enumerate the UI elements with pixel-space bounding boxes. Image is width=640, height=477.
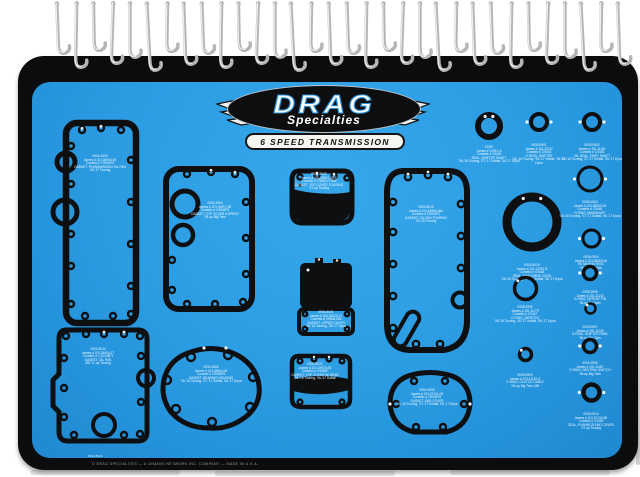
gasket-oil-pan-touring-gasket: 0934-5015 James # JGI-34904-06A Cometic … xyxy=(374,162,480,369)
logo-oval: DRAG Specialties xyxy=(227,85,421,133)
main-drive-gear-seal-ring-icon xyxy=(494,184,570,260)
top-cover-gasket-shape-icon xyxy=(157,160,261,318)
detent-pin-o-ring-ring-icon xyxy=(576,259,604,287)
gasket-oil-pan-m8-gasket: 0934-5014 James # JGI-34904-17 Cometic #… xyxy=(44,322,156,455)
part-label: 0935-0908 James # JGI-11187 O-RING, NEUT… xyxy=(555,362,622,376)
peg-hooks-row xyxy=(0,0,640,90)
part-label: 0935-0910 James # JGI-37133-98 Cometic #… xyxy=(555,413,622,431)
gasket-bearing-housing-gasket: 0934-4555 James # JGI-35654-06 Cometic #… xyxy=(152,342,270,441)
peg-hook-icon xyxy=(610,0,637,82)
gasket-end-cover-gasket: 0934-4556 James # JGI-37101-06 Cometic #… xyxy=(383,366,477,445)
display-board: DRAG Specialties 6 SPEED TRANSMISSION 09… xyxy=(18,56,638,470)
board-surface: DRAG Specialties 6 SPEED TRANSMISSION 09… xyxy=(32,82,622,458)
reflection xyxy=(450,470,610,475)
part-main-drive-gear-seal xyxy=(494,184,570,265)
board-subtitle: 6 SPEED TRANSMISSION xyxy=(245,133,405,150)
gasket-part-label: 0934-4555 James # JGI-35654-06 Cometic #… xyxy=(169,366,253,384)
gasket-transmission-oil-pan-gasket: 0934-4553 James # JGI-34904-06 Cometic #… xyxy=(55,114,145,337)
retaining-ring-ring-icon xyxy=(576,223,607,254)
brand-name: DRAG xyxy=(273,93,375,115)
mainshaft-o-ring-ring-icon xyxy=(571,160,609,198)
drag-specialties-logo: DRAG Specialties 6 SPEED TRANSMISSION xyxy=(215,85,431,151)
copyright-note: © DRAG SPECIALTIES — A LEMANS NETWORK IN… xyxy=(92,462,258,466)
display-board-photo: DRAG Specialties 6 SPEED TRANSMISSION 09… xyxy=(0,0,640,477)
part-label: 0935-0903 James # JGI-35652-06 Cometic #… xyxy=(554,201,622,219)
neutral-switch-o-ring-ring-icon xyxy=(576,332,604,360)
part-clutch-cable-o-ring xyxy=(512,341,539,373)
clutch-cable-o-ring-ring-icon xyxy=(512,341,539,368)
oil-pan-touring-gasket-shape-icon xyxy=(374,162,480,364)
part-mainshaft-o-ring xyxy=(571,160,609,203)
part-label: 0935-0905 James # JGI-11179 Cometic # C9… xyxy=(492,306,558,324)
part-shift-shaft-oil-seal xyxy=(576,106,608,143)
gasket-part-label: 0934-5015 James # JGI-34904-06A Cometic … xyxy=(384,206,468,224)
shifter-shaft-seal-ring-icon xyxy=(468,105,510,147)
dipstick-o-ring-ring-icon xyxy=(507,270,544,307)
gasket-part-label: 0934-4556 James # JGI-37101-06 Cometic #… xyxy=(391,389,463,407)
part-pushrod-end-cover-seal xyxy=(575,376,608,414)
gasket-upper-cover-gasket: 0934-5021 James # JGI-34923-17 Cometic #… xyxy=(293,252,359,343)
transmission-oil-pan-gasket-shape-icon xyxy=(55,114,145,332)
shifter-o-ring-ring-icon xyxy=(523,106,555,138)
gasket-part-label: 0934-4553 James # JGI-34904-06 Cometic #… xyxy=(61,155,139,173)
top-cover-bead-gasket-shape-icon xyxy=(286,348,356,414)
part-retaining-ring xyxy=(576,223,607,259)
gasket-part-label: 0934-5021 James # JGI-34923-17 Cometic #… xyxy=(300,311,352,329)
part-label: 0935-0909 James # JGI-11132-A O-RING, CL… xyxy=(490,374,560,388)
part-shifter-o-ring xyxy=(523,106,555,143)
shift-shaft-oil-seal-ring-icon xyxy=(576,106,608,138)
part-detent-pin-o-ring xyxy=(576,259,604,292)
gasket-top-cover-touring-gasket: 0934-5020 James # JGI-34917-06-X Cometic… xyxy=(283,162,359,237)
shifter-pawl-o-ring-ring-icon xyxy=(579,297,602,320)
reflection xyxy=(30,470,180,475)
pushrod-end-cover-seal-ring-icon xyxy=(575,376,608,409)
gasket-top-cover-gasket: 0934-4554 James # JGI-34917-06 Cometic #… xyxy=(157,160,261,323)
gasket-part-label: 0934-4554 James # JGI-34917-06 Cometic #… xyxy=(174,202,256,220)
gasket-top-cover-bead-gasket: 0934-5022 James # JGI-34923-06 Cometic #… xyxy=(286,348,356,419)
part-shifter-pawl-o-ring xyxy=(579,297,602,325)
bearing-housing-gasket-shape-icon xyxy=(152,342,270,436)
gasket-part-label: 0934-5020 James # JGI-34917-06-X Cometic… xyxy=(287,173,351,191)
reflection xyxy=(215,471,395,476)
oil-pan-m8-gasket-shape-icon xyxy=(44,322,156,450)
gasket-part-label: 0934-5022 James # JGI-34923-06 Cometic #… xyxy=(286,363,344,381)
gasket-part-label: 0934-5014 James # JGI-34904-17 Cometic #… xyxy=(56,348,140,366)
